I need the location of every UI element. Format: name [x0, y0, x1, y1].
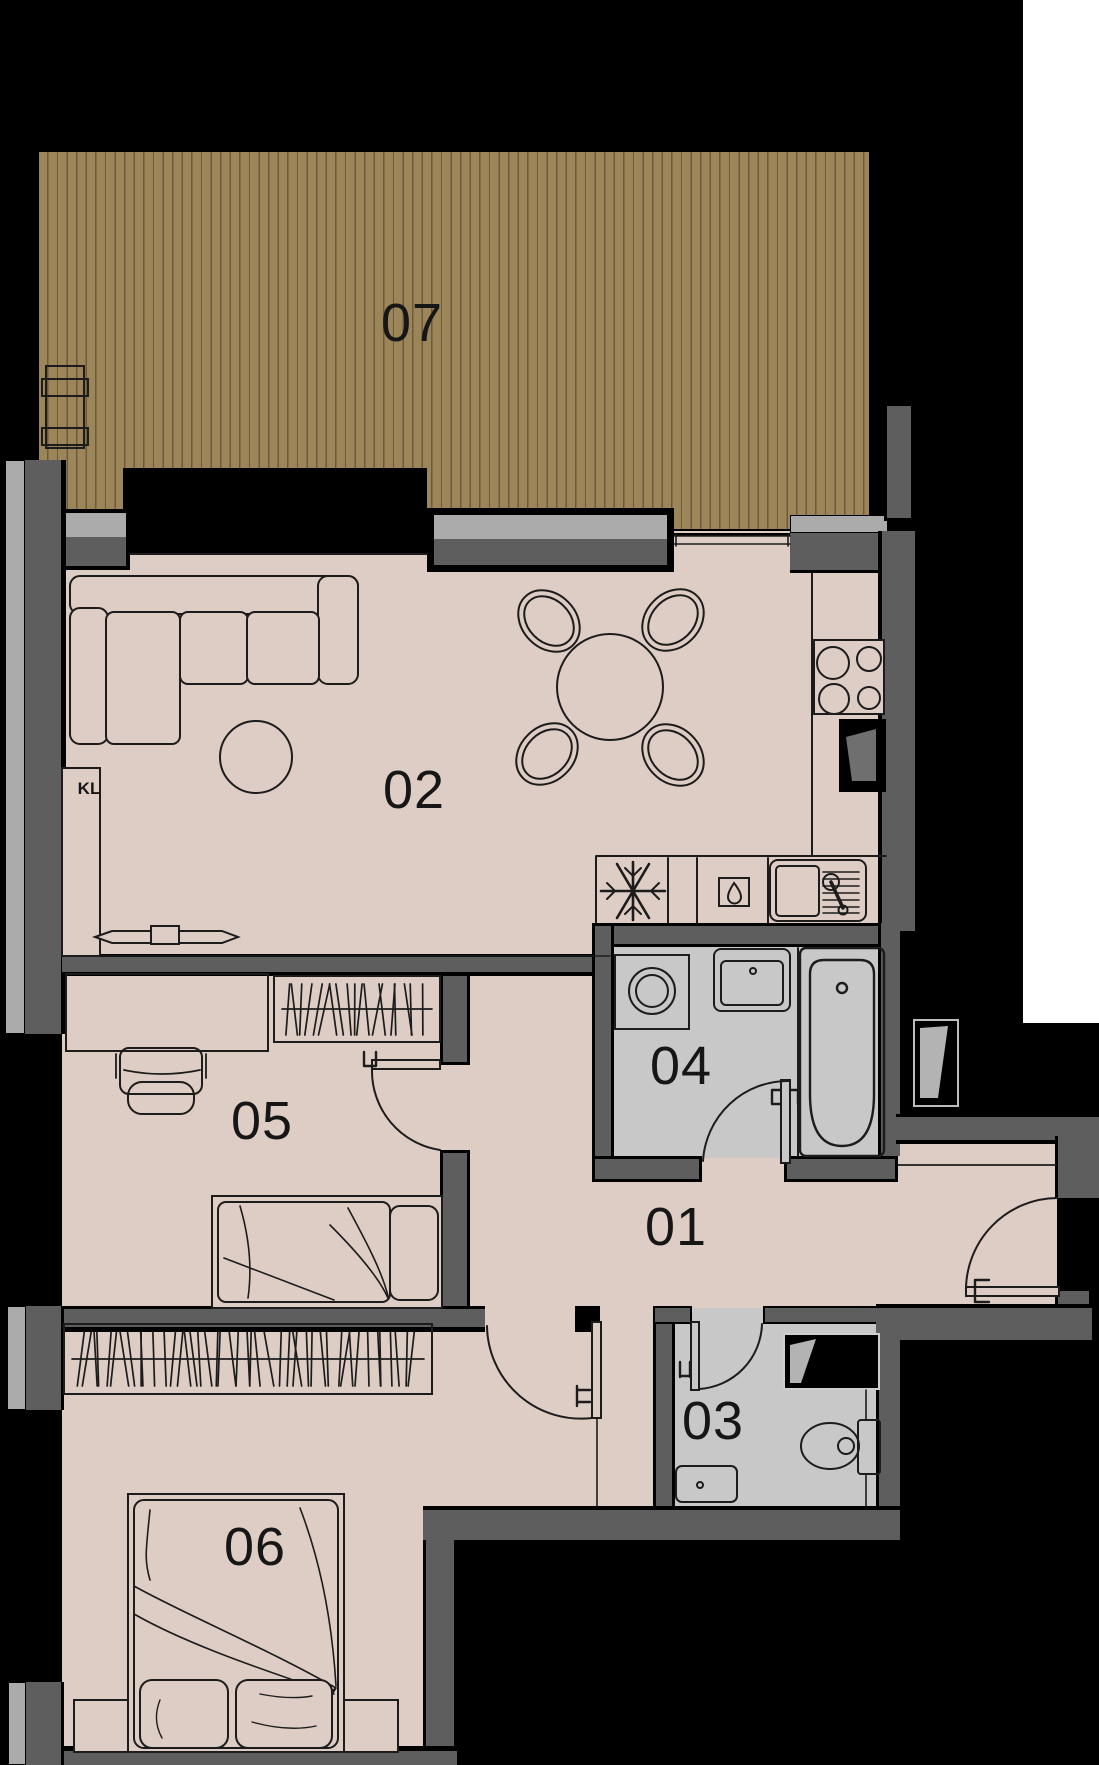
room-label-01: 01: [645, 1196, 707, 1258]
right-pier-sill: [790, 515, 888, 533]
page-margin: [1023, 0, 1099, 1023]
room-label-03: 03: [682, 1390, 744, 1452]
entry-nook-floor: [896, 1140, 1057, 1308]
room-label-05: 05: [231, 1090, 293, 1152]
room-label-06: 06: [224, 1516, 286, 1578]
bath-door-threshold: [702, 1158, 784, 1180]
bath-left-wall: [592, 923, 614, 1182]
room06-left-wall-upper: [26, 1306, 64, 1410]
nook-bottom-wall: [876, 1304, 1092, 1340]
room06-right-wall: [423, 1540, 457, 1757]
door06-threshold: [485, 1306, 575, 1330]
wall-below-wc: [423, 1506, 900, 1540]
entry-jamb-upper: [1055, 1136, 1099, 1198]
wall-02-05: [62, 954, 612, 976]
bath-top-wall: [592, 923, 888, 947]
door06-jamb: [575, 1306, 600, 1332]
wc-top-wall-right: [763, 1306, 880, 1324]
bedroom06-floor-upper: [62, 1322, 653, 1510]
left-wall: [25, 460, 66, 1034]
mid-pier-sill: [434, 515, 667, 539]
wc-left-wall: [653, 1306, 675, 1510]
room06-left-sill-lower: [8, 1682, 26, 1765]
wall-05-06: [62, 1306, 485, 1332]
terrace-right-stub: [884, 403, 914, 521]
strip-floor-patch: [596, 1306, 653, 1326]
room-label-04: 04: [650, 1035, 712, 1097]
bath-bottom-wall-left: [592, 1156, 702, 1182]
room06-bottom-wall: [62, 1746, 457, 1765]
kitchen-shaft: [839, 719, 886, 792]
wc-door-threshold: [692, 1308, 763, 1324]
room06-left-wall-lower: [26, 1682, 64, 1765]
window-right: [674, 533, 792, 572]
floor-plan: 07 02 04 05 01 03 06 KL: [0, 0, 1099, 1765]
right-pier-wall: [790, 533, 888, 573]
wall-05-hall-lower: [440, 1150, 470, 1310]
wall-05-hall-upper: [440, 973, 470, 1065]
closet-label-kl: KL: [78, 779, 101, 799]
terrace-sliding-door: [123, 468, 427, 554]
room06-left-sill-upper: [7, 1306, 26, 1410]
entry-shaft: [913, 1019, 959, 1107]
living-room-floor: [62, 531, 878, 958]
left-wall-sill: [5, 460, 25, 1034]
wc-shaft: [783, 1333, 880, 1390]
wc-top-wall-left: [653, 1306, 692, 1324]
bath-bottom-wall-right: [784, 1156, 898, 1182]
room-label-02: 02: [383, 759, 445, 821]
mid-pier-wall: [434, 539, 667, 565]
room-label-07: 07: [381, 292, 443, 354]
